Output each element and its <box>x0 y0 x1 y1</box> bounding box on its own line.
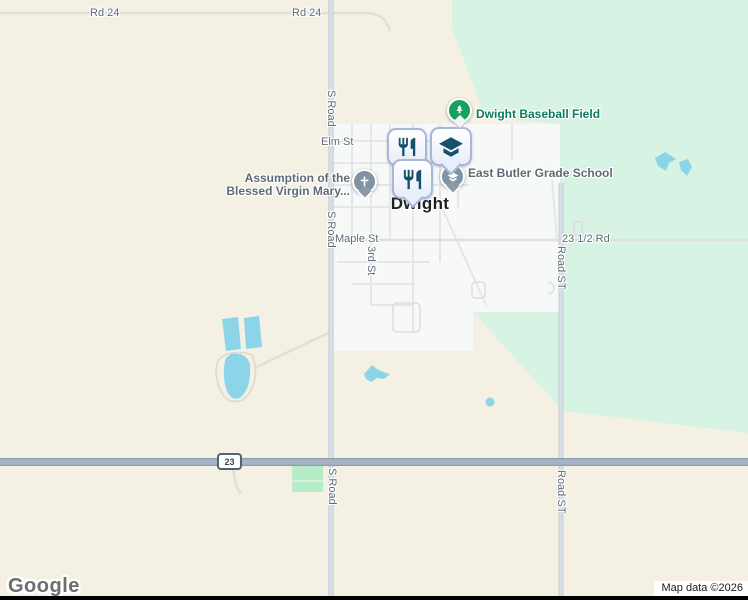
road-label-3rd-st: 3rd St <box>365 246 377 275</box>
highway-shield: 23 <box>217 453 242 470</box>
road-label-rd24-east: Rd 24 <box>292 7 321 19</box>
map-data-attribution: Map data ©2026 <box>654 581 748 596</box>
poi-label-church[interactable]: Assumption of the Blessed Virgin Mary... <box>198 172 350 198</box>
poi-label-grade-school[interactable]: East Butler Grade School <box>468 166 613 180</box>
pond-small <box>486 398 495 407</box>
pond-north <box>244 316 262 349</box>
tree-icon <box>453 104 466 117</box>
road-label-23-half-rd: 23 1/2 Rd <box>562 233 610 245</box>
school-icon <box>438 134 464 160</box>
map-canvas[interactable]: Rd 24 Rd 24 S Road S Road S Road Elm St … <box>0 0 748 600</box>
cross-icon <box>358 175 371 188</box>
road-label-maple-st: Maple St <box>335 233 378 245</box>
road-label-elm-st: Elm St <box>321 136 353 148</box>
google-logo[interactable]: Google <box>8 575 80 598</box>
highway-shield-number: 23 <box>224 457 234 467</box>
bottom-bar <box>0 596 748 600</box>
map-data-text: Map data ©2026 <box>662 582 744 594</box>
church-pin[interactable] <box>352 169 377 194</box>
poi-label-baseball-field[interactable]: Dwight Baseball Field <box>476 107 600 121</box>
road-label-road-st-south: Road ST <box>555 470 567 513</box>
baseball-field-pin[interactable] <box>447 98 472 123</box>
restaurant-icon <box>401 168 424 191</box>
road-label-s-road-south: S Road <box>326 468 338 505</box>
road-label-rd24-west: Rd 24 <box>90 7 119 19</box>
road-label-road-st-north: Road ST <box>555 246 567 289</box>
map-geometry <box>0 0 748 600</box>
poi-label-church-line2: Blessed Virgin Mary... <box>198 185 350 198</box>
field-patch <box>292 462 323 492</box>
restaurant-pin-2[interactable] <box>392 159 433 199</box>
school-chip-pin[interactable] <box>430 127 472 166</box>
restaurant-icon <box>396 136 418 158</box>
road-label-s-road-north: S Road <box>325 90 337 127</box>
